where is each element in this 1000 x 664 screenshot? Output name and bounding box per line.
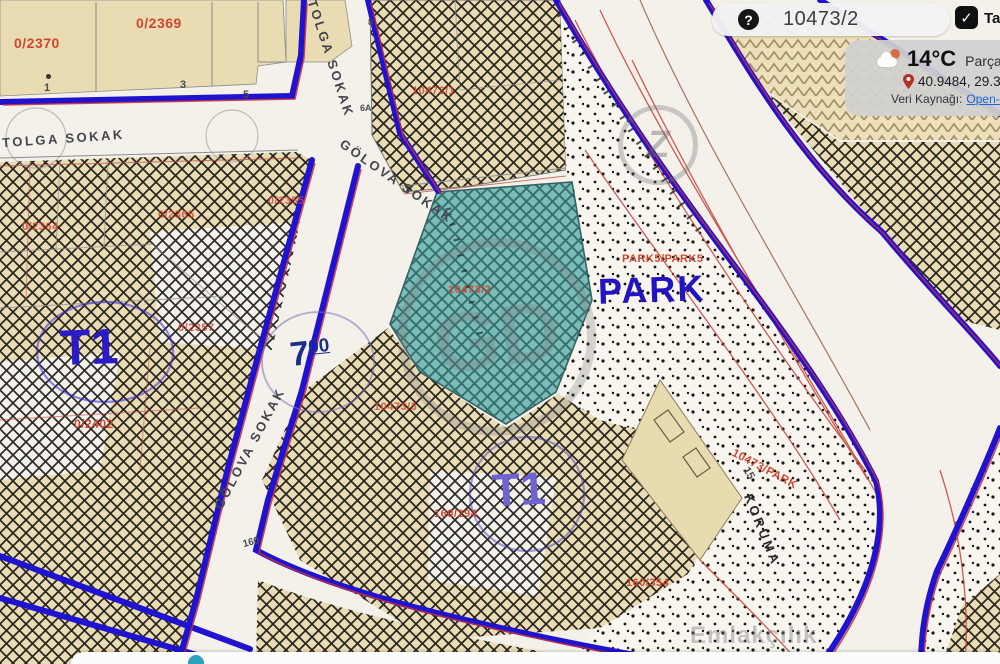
- partly-cloudy-icon: [877, 51, 901, 67]
- temperature-value: 14°C: [907, 46, 956, 72]
- bottom-sheet-bar[interactable]: [70, 652, 1000, 664]
- road-width-decimal: 00: [307, 335, 330, 358]
- parcel-label: 0/2402: [74, 418, 114, 430]
- watermark-text: Emlakçılık: [690, 624, 817, 648]
- park-zone-code-label: PARK5/PARK5: [622, 254, 704, 265]
- house-number: 5: [243, 90, 249, 101]
- location-pin-icon: [903, 74, 914, 89]
- parcel-label: 160/354: [626, 578, 669, 589]
- parcel-label: 0/2370: [14, 36, 60, 50]
- small-watermark-logo: Z: [618, 105, 698, 185]
- parcel-label: 10473/3: [374, 402, 417, 413]
- weather-condition: Parçalı: [965, 49, 1000, 69]
- watermark-z: Z: [646, 124, 669, 167]
- road-width-annotation: 700: [288, 334, 331, 372]
- zone-label-park: PARK: [597, 270, 706, 310]
- parcel-label: 0/2355: [268, 196, 305, 207]
- weather-card: 14°C Parçalı 40.9484, 29.359 Veri Kaynağ…: [845, 40, 1000, 116]
- checkbox-label: Ta: [984, 10, 1000, 27]
- bottom-bar-accent-dot[interactable]: [188, 655, 204, 664]
- survey-point-dot: [46, 74, 51, 79]
- parcel-label: 160/294: [434, 509, 477, 520]
- parcel-label: 0/2365: [158, 210, 195, 221]
- house-number: 3: [180, 80, 186, 91]
- house-number: 1: [44, 83, 50, 94]
- map-application: TOLGA SOKAK TOLGA SOKAK GÖLOVA SOKAK GÖL…: [0, 0, 1000, 664]
- parcel-label: 0/2364: [22, 222, 59, 233]
- help-icon[interactable]: ?: [738, 9, 759, 30]
- parcel-label: 0/2369: [136, 16, 182, 30]
- house-number: 8: [368, 18, 373, 27]
- coordinates-value: 40.9484, 29.359: [918, 74, 1000, 89]
- zone-label-t1-bottom: T1: [491, 465, 547, 514]
- watermark-letters: GD: [428, 280, 566, 394]
- parcel-label: 10473/1: [412, 86, 455, 97]
- parcel-id-pill[interactable]: ? 10473/2: [712, 3, 950, 36]
- house-number: 6A: [360, 104, 372, 113]
- data-source-label: Veri Kaynağı:: [891, 92, 962, 106]
- parcel-id-value: 10473/2: [783, 8, 859, 31]
- checkmark-icon: ✓: [960, 9, 973, 27]
- data-source-link[interactable]: Open-Me: [966, 92, 1000, 106]
- parcel-label: 0/2357: [178, 323, 215, 334]
- zone-label-t1-left: T1: [59, 321, 119, 373]
- map-layer-checkbox[interactable]: ✓: [955, 6, 978, 29]
